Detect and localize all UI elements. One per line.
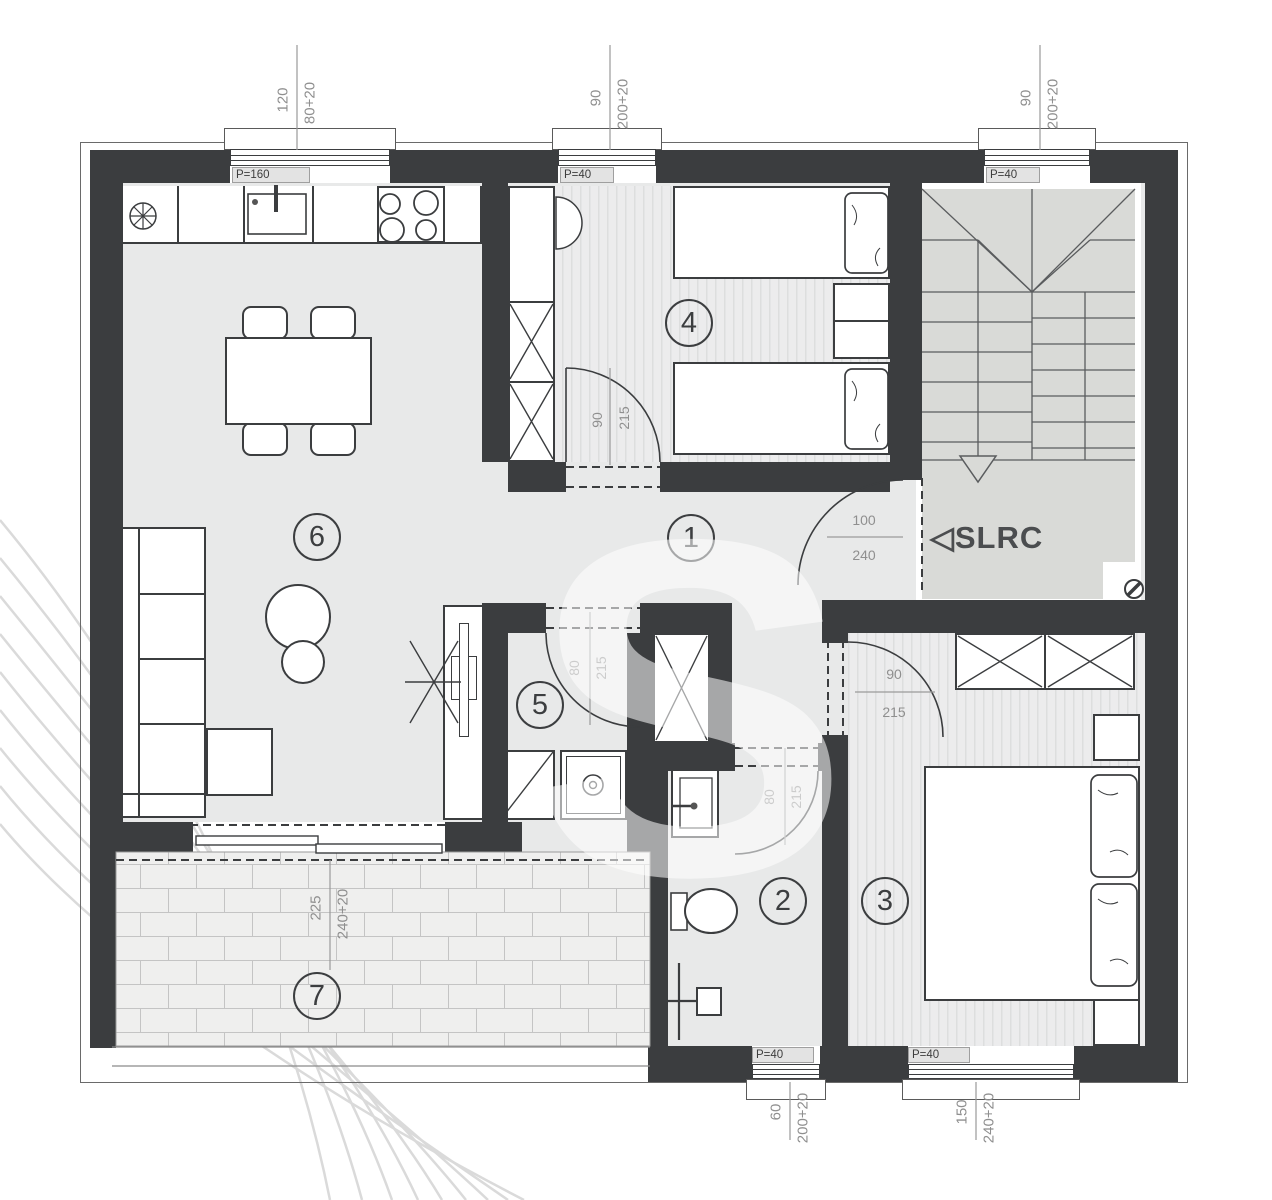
dining-chair: [242, 422, 288, 456]
room-label-laundry: 5: [516, 681, 564, 729]
window-kids: [558, 149, 656, 166]
window-sill: [978, 128, 1096, 150]
dim-main-door-w: 90: [886, 666, 902, 682]
window-label: P=40: [908, 1047, 970, 1063]
window-sill: [746, 1079, 826, 1100]
stove: [377, 186, 445, 243]
sofa-backrest-line: [138, 527, 140, 818]
dim-bath-window-w: 60: [768, 1104, 785, 1121]
wardrobe-divider: [1044, 633, 1046, 690]
dim-bath-door-w: 80: [761, 789, 777, 805]
dim-bath-window-h: 200+20: [795, 1093, 812, 1143]
dim-bath-door-h: 215: [788, 785, 804, 808]
counter-divider: [177, 186, 179, 244]
sofa-cushion-line: [140, 723, 206, 725]
dining-chair: [310, 422, 356, 456]
wall: [508, 603, 546, 633]
dim-kids-door-w: 90: [589, 412, 605, 428]
room-label-hall: 1: [667, 514, 715, 562]
dim-laundry-door-w: 80: [566, 660, 582, 676]
wall: [1145, 150, 1178, 1082]
laundry-cabinet: [500, 750, 555, 820]
window-sill: [552, 128, 662, 150]
wall: [482, 183, 508, 462]
wall: [640, 603, 732, 633]
window-label: P=40: [560, 167, 614, 183]
coffee-table-small: [281, 640, 325, 684]
stair-arrow-icon: ◁: [930, 520, 955, 555]
wall: [890, 183, 922, 480]
wall: [90, 150, 123, 825]
hall-closet: [653, 633, 710, 743]
dining-chair: [242, 306, 288, 340]
stair-landing-notch: [1103, 562, 1141, 599]
dim-laundry-door-h: 215: [593, 656, 609, 679]
dim-main-window-w: 150: [954, 1099, 971, 1124]
dining-table: [225, 337, 372, 425]
wall: [656, 150, 984, 183]
dim-kitchen-window-h: 80+20: [302, 82, 319, 124]
sofa: [116, 527, 206, 818]
sofa-cushion-line: [140, 658, 206, 660]
floor-plan: P=160 P=40 P=40 P=40 P=40: [0, 0, 1272, 1200]
dim-kitchen-window-w: 120: [275, 87, 292, 112]
room-label-main-bedroom: 3: [861, 877, 909, 925]
tv-screen: [459, 623, 469, 737]
wall: [482, 603, 508, 852]
wall: [820, 1046, 908, 1082]
room-label-living: 6: [293, 513, 341, 561]
wardrobe-divider: [508, 381, 555, 383]
window-label: P=40: [752, 1047, 814, 1063]
dim-entry-door-h: 240: [852, 547, 875, 563]
counter-divider: [243, 186, 245, 244]
sofa-arm-line: [116, 793, 206, 795]
wall-balcony-left: [90, 822, 116, 1048]
dim-entry-door-w: 100: [852, 512, 875, 528]
dining-chair: [310, 306, 356, 340]
dim-stairs-window-h: 200+20: [1045, 79, 1062, 129]
dim-terrace-door-w: 225: [308, 895, 325, 920]
wardrobe-divider: [508, 301, 555, 303]
window-main: [908, 1064, 1074, 1079]
dim-kids-window-h: 200+20: [615, 79, 632, 129]
wall: [822, 600, 1145, 633]
sofa-cushion-line: [140, 593, 206, 595]
window-bath: [752, 1064, 820, 1079]
window-label: P=40: [986, 167, 1040, 183]
dim-main-door-h: 215: [882, 704, 905, 720]
dim-main-window-h: 240+20: [981, 1093, 998, 1143]
wall: [710, 633, 732, 743]
nightstand: [1093, 714, 1140, 761]
wall: [822, 633, 848, 643]
window-sill: [224, 128, 396, 150]
double-bed: [924, 766, 1140, 1001]
dim-kids-door-h: 215: [616, 406, 632, 429]
room-label-terrace: 7: [293, 972, 341, 1020]
wall: [650, 771, 668, 1046]
dim-stairs-window-w: 90: [1018, 90, 1035, 107]
dim-terrace-door-h: 240+20: [335, 889, 352, 939]
wall: [660, 462, 890, 492]
wall: [390, 150, 558, 183]
window-label: P=160: [232, 167, 310, 183]
nightstand: [1093, 999, 1140, 1046]
wall: [90, 822, 193, 852]
counter-divider: [312, 186, 314, 244]
nightstand-divider: [833, 320, 890, 322]
room-label-kids-bedroom: 4: [665, 299, 713, 347]
single-bed: [673, 362, 890, 455]
window-kitchen: [230, 149, 390, 166]
sofa-chaise: [206, 728, 273, 796]
stair-direction-label: ◁SLRC: [930, 520, 1043, 556]
kids-wardrobe: [508, 186, 555, 462]
wall: [650, 743, 735, 771]
wall: [508, 462, 566, 492]
wall: [648, 1046, 752, 1082]
washing-machine-inner: [566, 756, 621, 814]
wall: [822, 735, 848, 1046]
single-bed: [673, 186, 890, 279]
window-stairs: [984, 149, 1090, 166]
room-label-bath: 2: [759, 877, 807, 925]
dim-kids-window-w: 90: [588, 90, 605, 107]
wall: [1074, 1046, 1145, 1082]
